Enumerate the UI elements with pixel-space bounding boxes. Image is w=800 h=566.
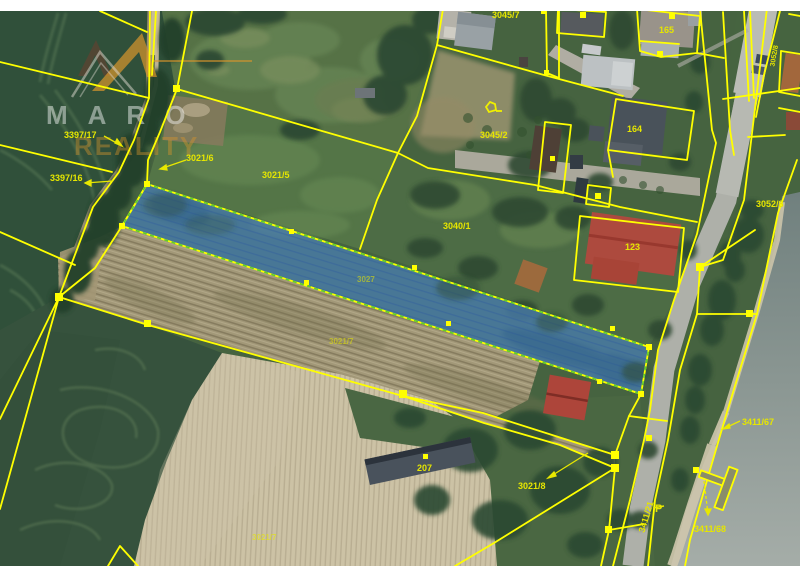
svg-text:3045/2: 3045/2 — [480, 130, 508, 140]
svg-text:P: P — [655, 503, 662, 515]
svg-text:165: 165 — [659, 25, 674, 35]
svg-text:3397/17: 3397/17 — [64, 130, 97, 140]
svg-text:3021/6: 3021/6 — [186, 153, 214, 163]
svg-text:3045/7: 3045/7 — [492, 10, 520, 20]
svg-text:3411/67: 3411/67 — [742, 417, 774, 427]
svg-text:3411/68: 3411/68 — [694, 524, 726, 534]
svg-text:3397/16: 3397/16 — [50, 173, 83, 183]
svg-text:3021/8: 3021/8 — [518, 481, 546, 491]
svg-text:207: 207 — [417, 463, 432, 473]
svg-text:3021/7: 3021/7 — [252, 533, 277, 542]
svg-text:3021/7: 3021/7 — [329, 337, 354, 346]
svg-text:3040/1: 3040/1 — [443, 221, 471, 231]
svg-text:MARO: MARO — [46, 100, 205, 130]
svg-text:164: 164 — [627, 124, 642, 134]
svg-text:3027: 3027 — [357, 275, 375, 284]
svg-text:3052/8: 3052/8 — [756, 199, 784, 209]
svg-text:3021/5: 3021/5 — [262, 170, 290, 180]
svg-text:123: 123 — [625, 242, 640, 252]
